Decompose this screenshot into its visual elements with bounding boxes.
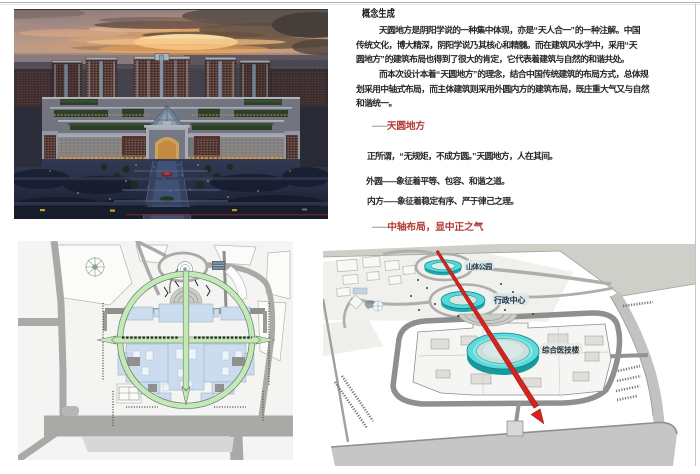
svg-text:综合医技楼: 综合医技楼 bbox=[542, 345, 580, 356]
svg-text:行政中心: 行政中心 bbox=[493, 295, 525, 306]
svg-text:山体公园: 山体公园 bbox=[466, 262, 492, 272]
